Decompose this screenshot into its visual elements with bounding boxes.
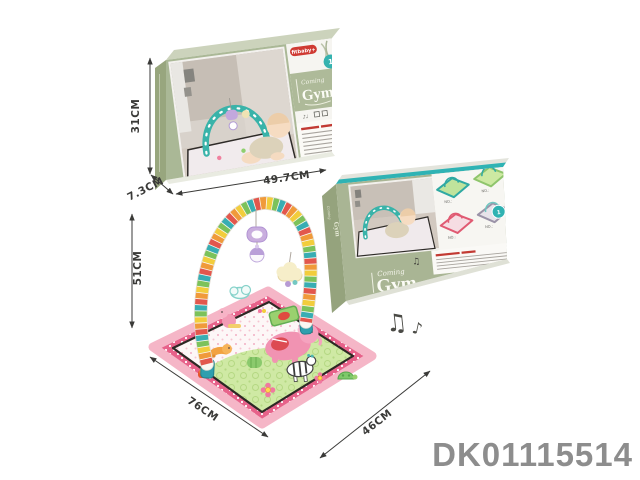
feature-icons: ♪♩ — [302, 114, 308, 121]
product-code: DK01115514 — [432, 436, 633, 473]
side-box-badge-text: 1 — [497, 210, 502, 216]
dimension-label: 51CM — [132, 251, 144, 286]
front-box-side-face — [155, 60, 166, 190]
dimension-label: 76CM — [185, 395, 221, 424]
side-box: Coming Gym — [322, 158, 521, 313]
variant-no: NO.: — [481, 189, 489, 194]
music-notes: ♫ ♪ — [384, 308, 424, 339]
product-sheet: fitbaby+ 1 Coming Gym ♪♩ ✓ — [0, 0, 640, 480]
product-illustration: fitbaby+ 1 Coming Gym ♪♩ ✓ — [0, 0, 640, 480]
music-note-single-icon: ♪ — [410, 318, 424, 339]
wall-frame-graphic — [183, 69, 195, 83]
music-note-beamed-icon: ♫ — [384, 308, 408, 338]
dimension-label: 49.7CM — [262, 169, 310, 187]
bush-graphic — [247, 357, 262, 368]
dimension-label: 31CM — [130, 99, 142, 134]
cloud-graphic — [230, 286, 251, 299]
check-icon: ✓ — [333, 110, 338, 116]
dimension-gym-height: 51CM — [132, 214, 144, 328]
variant-no: NO.: — [448, 235, 456, 240]
turtle-graphic — [338, 372, 358, 380]
front-box: fitbaby+ 1 Coming Gym ♪♩ ✓ — [125, 28, 353, 204]
variant-no: NO.: — [485, 224, 493, 229]
dimension-box-height: 31CM — [130, 58, 150, 174]
variant-no: NO.: — [444, 199, 452, 204]
wall-frame-graphic — [184, 87, 192, 97]
age-badge-text: 1 — [328, 58, 334, 67]
box-music-notes-icon: ♫ — [412, 257, 421, 268]
cloud-toy — [277, 262, 303, 287]
dimension-label: 7.3CM — [125, 175, 165, 204]
dimension-gym-depth: 46CM — [320, 371, 430, 458]
